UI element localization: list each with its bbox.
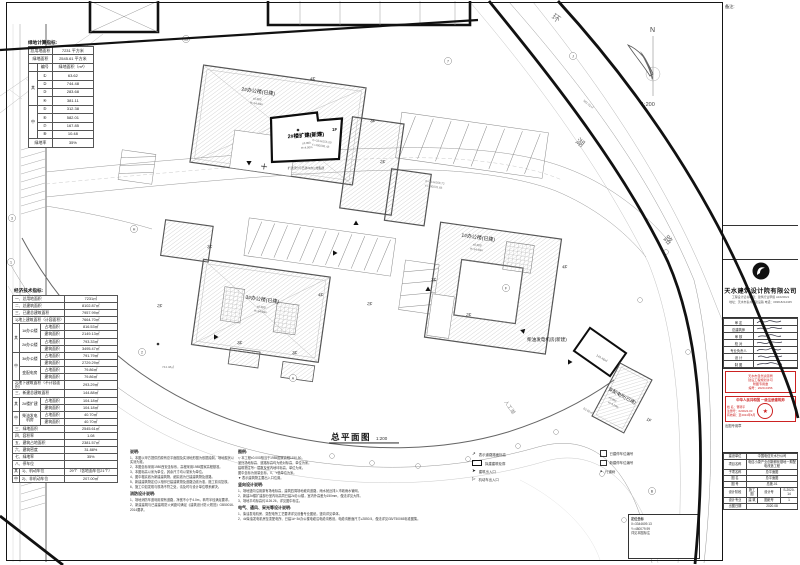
svg-text:744.48㎡: 744.48㎡ <box>162 364 174 369</box>
building-3-office <box>146 220 335 382</box>
fire-notes-title: 消防设计说明: <box>130 491 234 497</box>
signature-table: 审 定 总建筑师 审 核 校 对 专业负责人 设 计 制 图 <box>723 318 798 369</box>
building-outline-icon <box>472 460 482 466</box>
architect-stamp: 中华人民共和国 一级注册建筑师 姓 名：曹旸平 注册号：620022-00 有效… <box>725 396 796 422</box>
plan-scale: 1:200 <box>376 436 388 441</box>
elec-notes-title: 电气、通风、采光等设计说明: <box>238 505 464 511</box>
svg-text:2F: 2F <box>367 301 373 307</box>
svg-text:4F: 4F <box>310 76 316 82</box>
stamp-caption: 出图专用章 <box>723 422 798 430</box>
building-east-block <box>339 117 438 226</box>
remark-box: 备注: <box>723 2 798 226</box>
svg-text:H: H <box>133 227 136 231</box>
svg-text:3F: 3F <box>292 350 298 356</box>
svg-text:4F: 4F <box>318 292 324 298</box>
drawing-title: 总平面图 1:200 <box>329 432 399 443</box>
road-elevation-icon: ↗ <box>472 452 476 457</box>
company-logo <box>752 262 770 280</box>
svg-text:63.62㎡: 63.62㎡ <box>583 406 595 416</box>
green-area-table: 总用地面积7231 平方米 绿地面积2545.61 平方米 编号绿地面积（m²）… <box>28 46 94 148</box>
svg-text:13: 13 <box>184 37 188 41</box>
north-arrow: N 1:200 <box>628 27 660 108</box>
svg-text:J: J <box>572 54 574 58</box>
svg-text:湖: 湖 <box>574 136 587 149</box>
signature-scribble <box>755 333 785 338</box>
existing-parking-icon <box>600 450 607 457</box>
svg-text:3: 3 <box>11 216 13 220</box>
street-tree-icon: ● <box>600 470 602 474</box>
signature-scribble <box>755 319 785 324</box>
signature-scribble <box>755 347 785 352</box>
legend-title: 图例: <box>238 449 464 455</box>
company-name: 天水建筑设计院有限公司 <box>723 286 798 295</box>
legend-notes: 图例: ▽ 本工程±0.000相当于1985国家高程1150.50。 室外场地标… <box>238 447 464 522</box>
notes-title: 说明: <box>130 449 234 455</box>
planning-stamp: 天水市自然资源局 建设工程规划许可 附图专用章 编号：2020-0456 <box>725 371 796 393</box>
countersign-box <box>723 430 798 453</box>
svg-text:2F: 2F <box>380 159 386 165</box>
signature-scribble <box>755 340 785 345</box>
new-parking-icon <box>600 460 607 467</box>
entrance-arrow-icon: ➤ <box>472 469 476 474</box>
signature-scribble <box>755 326 785 331</box>
svg-text:7: 7 <box>447 59 449 63</box>
north-label: N <box>650 27 655 34</box>
svg-text:1F: 1F <box>646 416 653 423</box>
svg-text:2F: 2F <box>157 303 163 309</box>
lake-label: 人工湖 <box>502 399 516 415</box>
drawing-sheet: 7 J 13 1 2 H A F B 3 2#办公楼(已建) ±0.000 H=… <box>0 0 800 565</box>
economic-indicators-table: 一、总用地面积7231㎡ 二、总建筑面积8102.87㎡ 三、已建总建筑面积79… <box>12 295 118 483</box>
company-block: 天水建筑设计院有限公司 工程设计证书等级：建筑行业甲级 A1620021 地址：… <box>723 260 798 318</box>
label-generator-room: 柴油发电机房(新建) <box>527 336 567 343</box>
legend-symbols-right: 已建停车位编号 新建停车位编号 ●行道树 <box>600 450 658 477</box>
svg-text:4F: 4F <box>562 264 568 270</box>
vehicle-entrance-icon: ▷ <box>472 477 475 482</box>
round-seal: ★ <box>757 403 773 419</box>
svg-text:3F: 3F <box>431 277 437 283</box>
signature-scribble <box>755 354 785 359</box>
title-block: 备注: 天水建筑设计院有限公司 工程设计证书等级：建筑行业甲级 A1620021… <box>722 2 798 561</box>
signature-scribble <box>755 361 785 366</box>
parking-row-mid <box>244 218 396 276</box>
vertical-notes-title: 竖向设计说明: <box>238 482 464 488</box>
general-notes: 说明: 1、本图以甲方提供的原有总平面图及实测地形图为依据绘制，场地现状以实测为… <box>130 447 234 513</box>
north-scale: 1:200 <box>641 102 655 108</box>
spare-box <box>723 226 798 260</box>
svg-text:3F: 3F <box>237 340 243 346</box>
coordinates-box: 定位坐标 X=3344609.13 Y=480079.99 详见本图标注 <box>628 514 700 559</box>
econ-table-title: 经济技术指标: <box>14 288 43 294</box>
company-address: 地址：天水市秦州区建设路 电话：0938-8212345 <box>723 301 798 305</box>
svg-text:扩建部分与已建2#办公楼贴建: 扩建部分与已建2#办公楼贴建 <box>288 166 325 170</box>
top-structures <box>90 1 470 32</box>
svg-text:1: 1 <box>10 260 12 264</box>
title-fields: 建设单位中国电信天水分公司 项目名称电信小康产业创新孵化基地一期配电改造工程 子… <box>723 453 798 510</box>
svg-text:1F: 1F <box>332 127 337 132</box>
svg-text:3F: 3F <box>370 118 376 124</box>
legend-symbols: ↗表示道路路面标高 拟建建筑轮廓 ➤建筑出入口 ▷机动车出入口 <box>472 452 568 485</box>
svg-text:2: 2 <box>141 350 143 354</box>
parking-row-west <box>118 150 156 184</box>
plan-title: 总平面图 <box>331 432 371 442</box>
svg-text:环: 环 <box>550 11 563 24</box>
svg-text:3F: 3F <box>207 244 213 250</box>
svg-text:2F: 2F <box>466 312 472 318</box>
